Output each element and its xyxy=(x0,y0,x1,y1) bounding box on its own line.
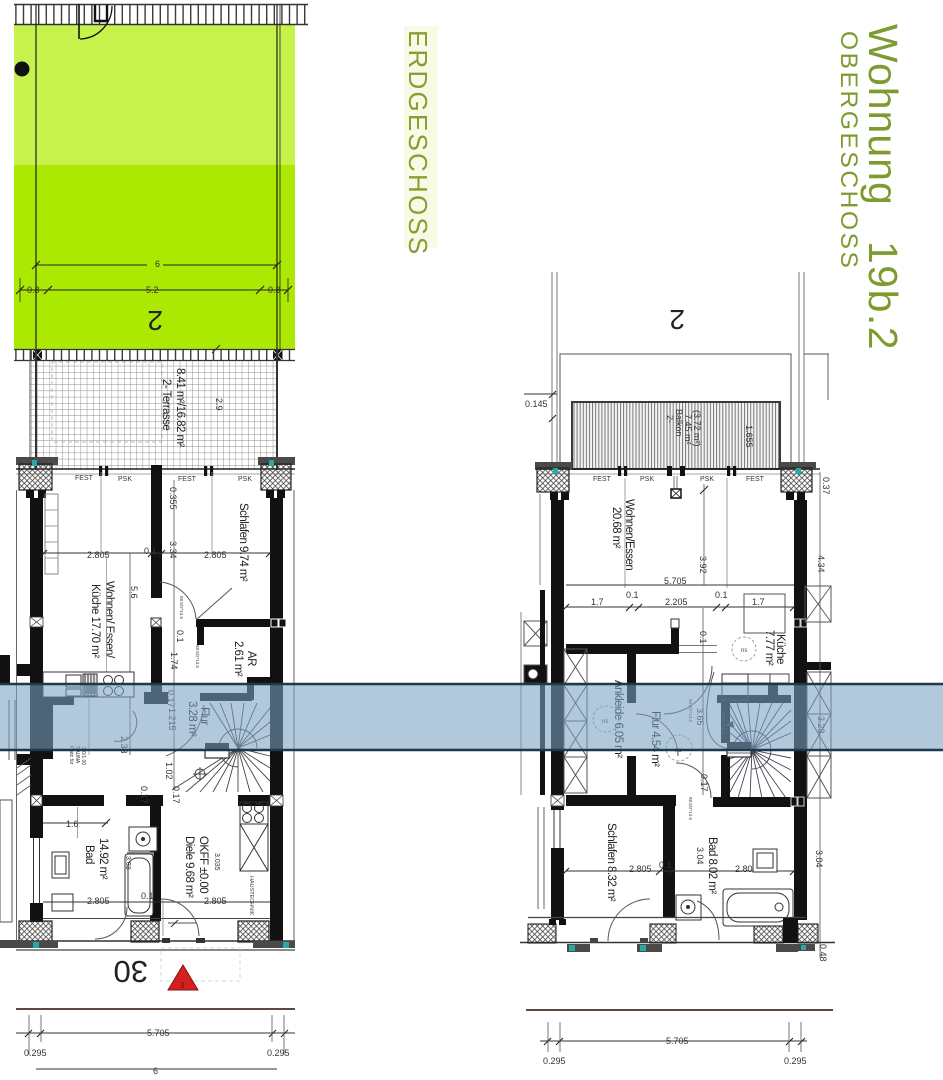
svg-text:2: 2 xyxy=(669,304,685,335)
svg-text:20.68 m²: 20.68 m² xyxy=(610,507,622,549)
svg-text:Bad: Bad xyxy=(83,845,95,864)
svg-text:PSK: PSK xyxy=(118,476,132,483)
svg-text:2.805: 2.805 xyxy=(204,550,227,560)
svg-text:4.34: 4.34 xyxy=(816,555,826,573)
svg-text:5.705: 5.705 xyxy=(147,1028,170,1038)
svg-text:FEST: FEST xyxy=(593,476,612,483)
svg-text:88.5/2*13.5: 88.5/2*13.5 xyxy=(179,596,184,620)
svg-text:0.295: 0.295 xyxy=(784,1056,807,1066)
svg-text:0.1: 0.1 xyxy=(175,630,185,643)
svg-text:1.655: 1.655 xyxy=(744,425,754,448)
svg-text:FEST: FEST xyxy=(746,476,765,483)
svg-text:19b.2: 19b.2 xyxy=(860,241,906,351)
svg-text:FEST: FEST xyxy=(178,476,197,483)
svg-text:PSK: PSK xyxy=(640,476,654,483)
svg-text:Wohnung: Wohnung xyxy=(860,24,906,206)
svg-text:3.92: 3.92 xyxy=(698,556,708,574)
svg-text:0.48: 0.48 xyxy=(818,944,828,962)
svg-text:6: 6 xyxy=(153,1066,158,1076)
svg-text:1.6: 1.6 xyxy=(66,819,79,829)
svg-text:8.41 m²/16.82 m²: 8.41 m²/16.82 m² xyxy=(174,368,186,447)
svg-text:AR: AR xyxy=(245,651,257,666)
svg-text:1.02: 1.02 xyxy=(164,762,174,780)
svg-text:0.17: 0.17 xyxy=(171,786,181,804)
svg-text:5.705: 5.705 xyxy=(666,1036,689,1046)
svg-text:7.77 m²: 7.77 m² xyxy=(763,630,775,666)
svg-text:2.805: 2.805 xyxy=(204,896,227,906)
svg-text:0.8: 0.8 xyxy=(27,285,40,295)
svg-text:0.145: 0.145 xyxy=(525,399,548,409)
svg-text:0.295: 0.295 xyxy=(24,1048,47,1058)
svg-text:0.355: 0.355 xyxy=(168,487,178,510)
svg-text:5.2: 5.2 xyxy=(146,285,159,295)
svg-text:2: 2 xyxy=(147,305,163,336)
svg-text:ns: ns xyxy=(741,648,747,654)
svg-text:Bad 8.02 m²: Bad 8.02 m² xyxy=(706,837,718,894)
svg-text:2.61 m²: 2.61 m² xyxy=(232,641,244,677)
svg-text:FEST: FEST xyxy=(75,475,94,482)
svg-text:2- Terrasse: 2- Terrasse xyxy=(160,379,172,430)
svg-text:6: 6 xyxy=(155,259,160,269)
svg-text:0.1: 0.1 xyxy=(144,546,157,556)
svg-text:88.5/2*13.5: 88.5/2*13.5 xyxy=(195,645,200,669)
svg-text:2.805: 2.805 xyxy=(87,896,110,906)
svg-text:PSK: PSK xyxy=(238,476,252,483)
svg-text:3.34: 3.34 xyxy=(168,541,178,559)
svg-text:0.1: 0.1 xyxy=(715,590,728,600)
svg-text:0.1: 0.1 xyxy=(626,590,639,600)
svg-text:0.37: 0.37 xyxy=(821,477,831,495)
svg-text:(3.72 m²): (3.72 m²) xyxy=(692,410,702,447)
svg-text:1.7: 1.7 xyxy=(752,597,765,607)
svg-text:Schlafen 8.32 m²: Schlafen 8.32 m² xyxy=(605,823,617,902)
svg-text:3.04: 3.04 xyxy=(695,847,705,865)
svg-text:ERDGESCHOSS: ERDGESCHOSS xyxy=(403,30,433,256)
svg-text:0.8: 0.8 xyxy=(268,285,281,295)
svg-text:5.705: 5.705 xyxy=(664,576,687,586)
svg-text:2.205: 2.205 xyxy=(665,597,688,607)
svg-text:PSK: PSK xyxy=(700,476,714,483)
svg-text:Schlafen 9.74 m²: Schlafen 9.74 m² xyxy=(237,503,249,582)
svg-text:0.295: 0.295 xyxy=(267,1048,290,1058)
svg-text:3.04: 3.04 xyxy=(814,850,824,868)
svg-text:0.1: 0.1 xyxy=(659,860,672,870)
svg-text:3: 3 xyxy=(180,981,185,990)
svg-text:1.7: 1.7 xyxy=(591,597,604,607)
svg-text:Wohnen/ Essen/: Wohnen/ Essen/ xyxy=(103,581,115,659)
svg-text:0.295: 0.295 xyxy=(543,1056,566,1066)
svg-text:0.1: 0.1 xyxy=(141,891,154,901)
svg-text:3.03: 3.03 xyxy=(124,856,131,870)
svg-text:HAUSTECHNIK: HAUSTECHNIK xyxy=(248,876,254,916)
svg-text:2-: 2- xyxy=(665,415,675,423)
svg-text:30: 30 xyxy=(114,954,148,989)
svg-text:88.5/2*13.5: 88.5/2*13.5 xyxy=(688,797,693,821)
svg-text:0.1: 0.1 xyxy=(698,631,708,644)
svg-text:14.92 m²: 14.92 m² xyxy=(97,838,109,880)
svg-text:3.035: 3.035 xyxy=(213,853,220,871)
svg-text:Diele 9.68 m²: Diele 9.68 m² xyxy=(183,836,195,898)
svg-text:2.9: 2.9 xyxy=(214,398,224,411)
svg-text:5.6: 5.6 xyxy=(129,586,139,599)
svg-text:OKFF ±0.00: OKFF ±0.00 xyxy=(197,836,209,893)
svg-text:7.45 m²: 7.45 m² xyxy=(683,414,693,445)
svg-text:2.805: 2.805 xyxy=(629,864,652,874)
svg-text:0.17: 0.17 xyxy=(139,786,149,804)
svg-text:Küche 17.70 m²: Küche 17.70 m² xyxy=(89,584,101,658)
svg-text:Balkon: Balkon xyxy=(674,409,684,437)
svg-text:OBERGESCHOSS: OBERGESCHOSS xyxy=(835,31,862,271)
